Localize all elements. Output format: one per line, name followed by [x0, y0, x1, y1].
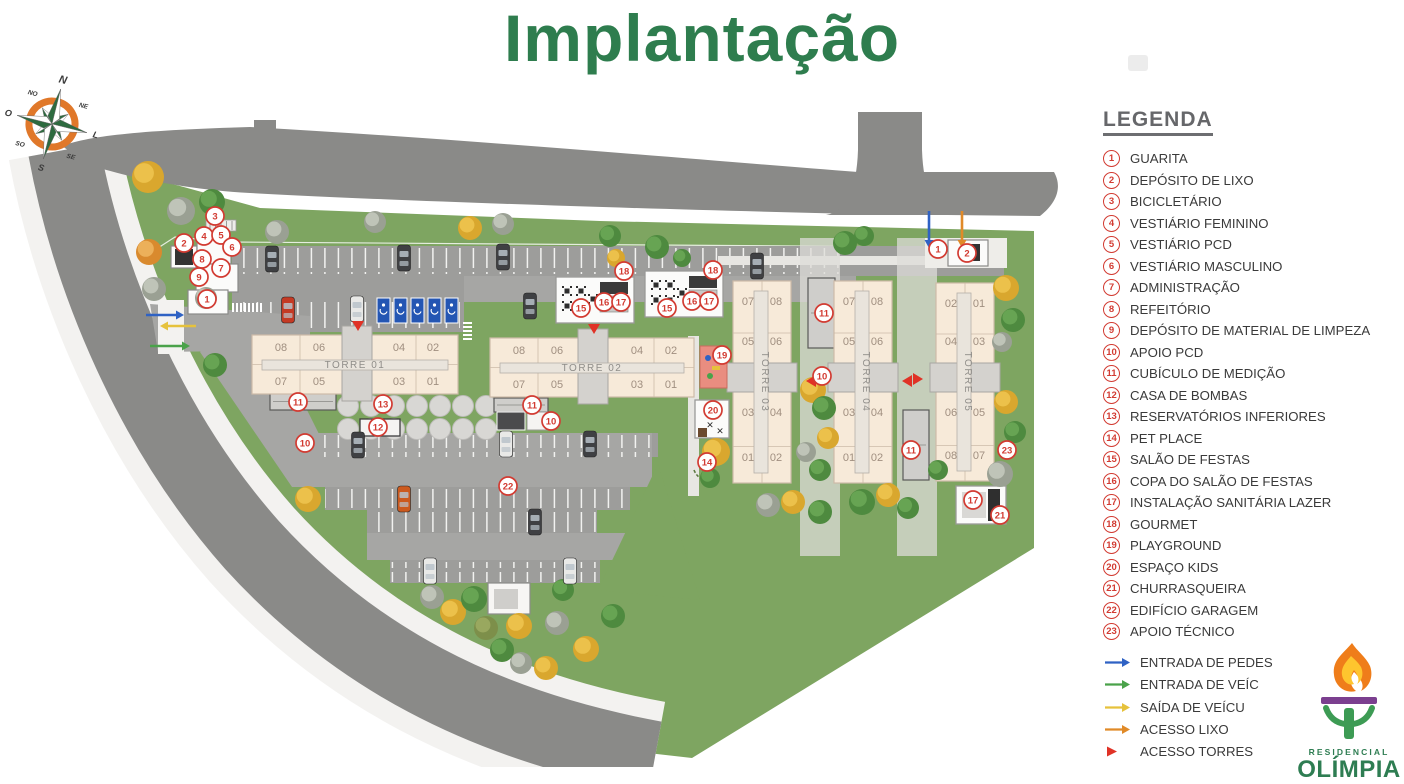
tree	[796, 442, 816, 462]
tower-label: TORRE 03	[759, 352, 770, 413]
unit-number: 03	[973, 336, 985, 348]
pcd-parking-stall	[411, 298, 424, 323]
svg-text:NE: NE	[78, 102, 89, 111]
plan-marker-19: 19	[713, 346, 731, 364]
unit-number: 03	[742, 407, 754, 419]
svg-text:11: 11	[293, 397, 304, 408]
svg-text:9: 9	[196, 272, 201, 283]
unit-number: 08	[513, 345, 525, 357]
svg-text:6: 6	[229, 242, 234, 253]
legend-item-number: 3	[1103, 193, 1120, 210]
flow-label: SAÍDA DE VEÍCU	[1140, 700, 1245, 715]
plan-marker-1: 1	[198, 290, 216, 308]
legend-item-label: DEPÓSITO DE LIXO	[1130, 173, 1254, 188]
legend-item-number: 8	[1103, 301, 1120, 318]
unit-number: 06	[871, 336, 883, 348]
svg-text:3: 3	[212, 211, 217, 222]
legend-item: 9DEPÓSITO DE MATERIAL DE LIMPEZA	[1103, 320, 1403, 342]
unit-number: 03	[631, 379, 643, 391]
tree	[490, 638, 514, 662]
legend-item-label: CASA DE BOMBAS	[1130, 388, 1247, 403]
flow-label: ENTRADA DE VEÍC	[1140, 677, 1259, 692]
plan-marker-15: 15	[658, 299, 676, 317]
legend-item-label: PET PLACE	[1130, 431, 1202, 446]
legend-item: 13RESERVATÓRIOS INFERIORES	[1103, 406, 1403, 428]
pcd-parking-stall	[377, 298, 390, 323]
flow-arrow-icon	[1103, 678, 1131, 691]
unit-number: 04	[393, 342, 405, 354]
tree	[833, 231, 857, 255]
svg-text:14: 14	[702, 457, 713, 468]
car	[500, 431, 513, 457]
reservoir-tank	[453, 419, 474, 440]
unit-number: 01	[973, 298, 985, 310]
flow-label: ENTRADA DE PEDES	[1140, 655, 1273, 670]
unit-number: 02	[665, 345, 677, 357]
legend-item: 23APOIO TÉCNICO	[1103, 621, 1403, 643]
unit-number: 01	[427, 376, 439, 388]
legend-item: 20ESPAÇO KIDS	[1103, 557, 1403, 579]
legend-item: 7ADMINISTRAÇÃO	[1103, 277, 1403, 299]
tree	[474, 616, 498, 640]
unit-number: 08	[770, 296, 782, 308]
legend-item-label: GOURMET	[1130, 517, 1197, 532]
reservoir-tank	[453, 396, 474, 417]
unit-number: 06	[945, 407, 957, 419]
unit-number: 02	[427, 342, 439, 354]
svg-text:21: 21	[995, 510, 1006, 521]
logo: RESIDENCIAL OLÍMPIA	[1293, 641, 1404, 784]
legend-item: 8REFEITÓRIO	[1103, 299, 1403, 321]
svg-text:19: 19	[717, 350, 728, 361]
plan-marker-11: 11	[289, 393, 307, 411]
legend-item-label: ESPAÇO KIDS	[1130, 560, 1218, 575]
svg-text:18: 18	[619, 266, 630, 277]
tree	[132, 161, 164, 193]
legend-item: 17INSTALAÇÃO SANITÁRIA LAZER	[1103, 492, 1403, 514]
legend-item-number: 12	[1103, 387, 1120, 404]
tree	[295, 486, 321, 512]
tower-label: TORRE 05	[962, 352, 973, 413]
reservoir-tank	[430, 419, 451, 440]
flow-arrow-icon	[1103, 723, 1131, 736]
svg-text:✕: ✕	[706, 420, 714, 430]
car	[352, 432, 365, 458]
legend-item-number: 18	[1103, 516, 1120, 533]
unit-number: 05	[313, 376, 325, 388]
svg-text:12: 12	[373, 422, 384, 433]
svg-text:5: 5	[218, 230, 224, 241]
plan-marker-3: 3	[206, 207, 224, 225]
plan-marker-2: 2	[958, 244, 976, 262]
plan-marker-17: 17	[964, 491, 982, 509]
legend-item: 2DEPÓSITO DE LIXO	[1103, 170, 1403, 192]
legend-item: 1GUARITA	[1103, 148, 1403, 170]
svg-text:10: 10	[546, 416, 557, 427]
plan-marker-13: 13	[374, 395, 392, 413]
plan-marker-17: 17	[700, 292, 718, 310]
legend-item-label: VESTIÁRIO MASCULINO	[1130, 259, 1282, 274]
flow-arrow-icon	[1103, 656, 1131, 669]
legend-item-number: 2	[1103, 172, 1120, 189]
svg-text:SO: SO	[15, 140, 26, 149]
unit-number: 05	[843, 336, 855, 348]
legend-item-number: 14	[1103, 430, 1120, 447]
legend-item: 11CUBÍCULO DE MEDIÇÃO	[1103, 363, 1403, 385]
svg-text:✕: ✕	[716, 426, 724, 436]
legend-item-label: COPA DO SALÃO DE FESTAS	[1130, 474, 1313, 489]
decorative-artifact	[1128, 55, 1148, 71]
plan-marker-11: 11	[523, 396, 541, 414]
tree	[534, 656, 558, 680]
plan-marker-23: 23	[998, 441, 1016, 459]
svg-text:11: 11	[819, 308, 830, 319]
unit-number: 03	[843, 407, 855, 419]
plan-marker-18: 18	[704, 261, 722, 279]
svg-text:2: 2	[181, 238, 186, 249]
unit-number: 06	[551, 345, 563, 357]
plan-marker-2: 2	[175, 234, 193, 252]
tree	[854, 226, 874, 246]
legend-item: 18GOURMET	[1103, 514, 1403, 536]
legend-item-label: BICICLETÁRIO	[1130, 194, 1222, 209]
svg-text:8: 8	[199, 254, 204, 265]
road-stub	[254, 120, 276, 133]
unit-number: 04	[945, 336, 957, 348]
unit-number: 08	[945, 450, 957, 462]
unit-number: 05	[742, 336, 754, 348]
plan-marker-7: 7	[212, 259, 230, 277]
tree	[876, 483, 900, 507]
tree	[645, 235, 669, 259]
legend-item-number: 21	[1103, 580, 1120, 597]
tree	[506, 613, 532, 639]
unit-number: 01	[742, 452, 754, 464]
svg-text:10: 10	[300, 438, 311, 449]
legend-item-label: VESTIÁRIO FEMININO	[1130, 216, 1268, 231]
tree	[510, 652, 532, 674]
flow-triangle-icon	[1103, 745, 1131, 758]
plan-marker-10: 10	[813, 367, 831, 385]
svg-text:16: 16	[599, 297, 610, 308]
tree	[992, 332, 1012, 352]
legend-item-number: 5	[1103, 236, 1120, 253]
plan-marker-12: 12	[369, 418, 387, 436]
flow-label: ACESSO TORRES	[1140, 744, 1253, 759]
unit-number: 07	[513, 379, 525, 391]
plan-marker-16: 16	[683, 292, 701, 310]
svg-text:2: 2	[964, 248, 969, 259]
svg-text:17: 17	[616, 297, 627, 308]
svg-text:7: 7	[218, 263, 223, 274]
legend-item-number: 4	[1103, 215, 1120, 232]
legend-item-label: SALÃO DE FESTAS	[1130, 452, 1250, 467]
plan-marker-21: 21	[991, 506, 1009, 524]
tower: 0806040207050301TORRE 01	[252, 326, 458, 401]
tree	[994, 390, 1018, 414]
legend-item: 15SALÃO DE FESTAS	[1103, 449, 1403, 471]
unit-number: 01	[843, 452, 855, 464]
legend-item-number: 10	[1103, 344, 1120, 361]
car	[564, 558, 577, 584]
unit-number: 02	[770, 452, 782, 464]
tree	[492, 213, 514, 235]
legend-item-number: 1	[1103, 150, 1120, 167]
car	[398, 486, 411, 512]
legend-item-number: 16	[1103, 473, 1120, 490]
svg-text:4: 4	[201, 231, 207, 242]
legend-item-number: 7	[1103, 279, 1120, 296]
plan-marker-17: 17	[612, 293, 630, 311]
tower: 0806040207050301TORRE 02	[490, 329, 694, 404]
legend-item: 16COPA DO SALÃO DE FESTAS	[1103, 471, 1403, 493]
svg-text:18: 18	[708, 265, 719, 276]
legend-item: 12CASA DE BOMBAS	[1103, 385, 1403, 407]
tower-label: TORRE 01	[325, 360, 386, 371]
unit-number: 01	[665, 379, 677, 391]
car	[282, 297, 295, 323]
tower: 0708050603040102TORRE 03	[727, 281, 797, 483]
svg-text:15: 15	[576, 303, 587, 314]
legend-item-label: VESTIÁRIO PCD	[1130, 237, 1232, 252]
legend-item-number: 15	[1103, 451, 1120, 468]
plan-marker-10: 10	[296, 434, 314, 452]
legend-item: 6VESTIÁRIO MASCULINO	[1103, 256, 1403, 278]
legend-item-label: EDIFÍCIO GARAGEM	[1130, 603, 1258, 618]
legend-item-label: GUARITA	[1130, 151, 1188, 166]
plan-marker-8: 8	[193, 250, 211, 268]
pcd-parking-stall	[394, 298, 407, 323]
plan-root: 0806040207050301TORRE 010806040207050301…	[0, 63, 1058, 758]
legend-item-label: ADMINISTRAÇÃO	[1130, 280, 1240, 295]
plan-marker-20: 20	[704, 401, 722, 419]
torch-icon	[1295, 641, 1403, 741]
svg-text:23: 23	[1002, 445, 1013, 456]
legend-item: 14PET PLACE	[1103, 428, 1403, 450]
tree	[601, 604, 625, 628]
tree	[545, 611, 569, 635]
tower-label: TORRE 02	[562, 363, 623, 374]
plan-marker-9: 9	[190, 268, 208, 286]
legend-item-label: DEPÓSITO DE MATERIAL DE LIMPEZA	[1130, 323, 1370, 338]
plan-marker-11: 11	[902, 441, 920, 459]
plan-marker-6: 6	[223, 238, 241, 256]
car	[524, 293, 537, 319]
tree	[928, 460, 948, 480]
tree	[756, 493, 780, 517]
reservoir-tank	[430, 396, 451, 417]
tree	[1001, 308, 1025, 332]
legend-item-number: 9	[1103, 322, 1120, 339]
tree	[849, 489, 875, 515]
tower-label: TORRE 04	[860, 352, 871, 413]
legend-item-number: 20	[1103, 559, 1120, 576]
tree	[993, 275, 1019, 301]
tree	[817, 427, 839, 449]
legend-item-label: APOIO TÉCNICO	[1130, 624, 1235, 639]
legend-item: 4VESTIÁRIO FEMININO	[1103, 213, 1403, 235]
tree	[364, 211, 386, 233]
plan-marker-22: 22	[499, 477, 517, 495]
legend-item: 5VESTIÁRIO PCD	[1103, 234, 1403, 256]
unit-number: 08	[275, 342, 287, 354]
legend-heading: LEGENDA	[1103, 108, 1213, 136]
legend-item-number: 22	[1103, 602, 1120, 619]
legend-item-number: 13	[1103, 408, 1120, 425]
tree	[897, 497, 919, 519]
legend-item-label: CUBÍCULO DE MEDIÇÃO	[1130, 366, 1285, 381]
flow-arrow-icon	[1103, 701, 1131, 714]
tree	[987, 461, 1013, 487]
unit-number: 04	[631, 345, 643, 357]
tree	[809, 459, 831, 481]
unit-number: 08	[871, 296, 883, 308]
support-building	[497, 412, 525, 430]
tower: 0201040306050807TORRE 05	[930, 283, 1000, 481]
plan-marker-1: 1	[929, 240, 947, 258]
legend-item-number: 19	[1103, 537, 1120, 554]
unit-number: 07	[973, 450, 985, 462]
svg-text:16: 16	[687, 296, 698, 307]
legend-item-label: CHURRASQUEIRA	[1130, 581, 1246, 596]
tree	[142, 277, 166, 301]
svg-text:15: 15	[662, 303, 673, 314]
car	[529, 509, 542, 535]
reservoir-tank	[407, 419, 428, 440]
unit-number: 04	[871, 407, 883, 419]
unit-number: 06	[313, 342, 325, 354]
svg-text:17: 17	[704, 296, 715, 307]
svg-text:17: 17	[968, 495, 979, 506]
logo-name: OLÍMPIA	[1293, 756, 1404, 784]
car	[398, 245, 411, 271]
tree	[1004, 421, 1026, 443]
car	[424, 558, 437, 584]
unit-number: 04	[770, 407, 782, 419]
tree	[420, 585, 444, 609]
reservoir-tank	[476, 419, 497, 440]
tree	[167, 197, 195, 225]
tower: 0708050603040102TORRE 04	[828, 281, 898, 483]
car	[584, 431, 597, 457]
legend-item-label: PLAYGROUND	[1130, 538, 1221, 553]
tree	[573, 636, 599, 662]
car	[351, 296, 364, 322]
car	[497, 244, 510, 270]
unit-number: 03	[393, 376, 405, 388]
svg-text:11: 11	[527, 400, 538, 411]
tree	[812, 396, 836, 420]
legend-item-number: 6	[1103, 258, 1120, 275]
tree	[136, 239, 162, 265]
pcd-parking-stall	[428, 298, 441, 323]
svg-text:1: 1	[935, 244, 941, 255]
reservoir-tank	[407, 396, 428, 417]
tree	[599, 225, 621, 247]
plan-marker-10: 10	[542, 412, 560, 430]
unit-number: 06	[770, 336, 782, 348]
legend-item-label: APOIO PCD	[1130, 345, 1203, 360]
page-title: Implantação	[0, 0, 1404, 76]
legend-item-number: 11	[1103, 365, 1120, 382]
plan-marker-14: 14	[698, 453, 716, 471]
unit-number: 07	[742, 296, 754, 308]
legend-item: 3BICICLETÁRIO	[1103, 191, 1403, 213]
svg-text:20: 20	[708, 405, 719, 416]
legend-list: 1GUARITA2DEPÓSITO DE LIXO3BICICLETÁRIO4V…	[1103, 148, 1403, 643]
tree	[808, 500, 832, 524]
plan-marker-18: 18	[615, 262, 633, 280]
unit-number: 07	[275, 376, 287, 388]
unit-number: 02	[945, 298, 957, 310]
tree	[265, 220, 289, 244]
legend-item-number: 23	[1103, 623, 1120, 640]
plan-marker-15: 15	[572, 299, 590, 317]
unit-number: 07	[843, 296, 855, 308]
legend-item-label: RESERVATÓRIOS INFERIORES	[1130, 409, 1326, 424]
flow-label: ACESSO LIXO	[1140, 722, 1229, 737]
legend-item: 19PLAYGROUND	[1103, 535, 1403, 557]
svg-text:10: 10	[817, 371, 828, 382]
svg-text:1: 1	[204, 294, 210, 305]
unit-number: 05	[973, 407, 985, 419]
tree	[673, 249, 691, 267]
legend-item: 21CHURRASQUEIRA	[1103, 578, 1403, 600]
tree	[458, 216, 482, 240]
plan-marker-4: 4	[195, 227, 213, 245]
plan-marker-11: 11	[815, 304, 833, 322]
legend-item: 10APOIO PCD	[1103, 342, 1403, 364]
svg-text:22: 22	[503, 481, 514, 492]
car	[751, 253, 764, 279]
legend-item-label: INSTALAÇÃO SANITÁRIA LAZER	[1130, 495, 1331, 510]
legend-item-number: 17	[1103, 494, 1120, 511]
unit-number: 05	[551, 379, 563, 391]
car	[266, 246, 279, 272]
unit-number: 02	[871, 452, 883, 464]
svg-text:13: 13	[378, 399, 389, 410]
tree	[203, 353, 227, 377]
legend-item: 22EDIFÍCIO GARAGEM	[1103, 600, 1403, 622]
svg-text:O: O	[4, 107, 13, 118]
tree	[781, 490, 805, 514]
reservoir-tank	[476, 396, 497, 417]
tree	[461, 586, 487, 612]
pcd-parking-stall	[445, 298, 458, 323]
svg-text:NO: NO	[27, 89, 38, 98]
legend-item-label: REFEITÓRIO	[1130, 302, 1211, 317]
plan-marker-16: 16	[595, 293, 613, 311]
svg-text:11: 11	[906, 445, 917, 456]
